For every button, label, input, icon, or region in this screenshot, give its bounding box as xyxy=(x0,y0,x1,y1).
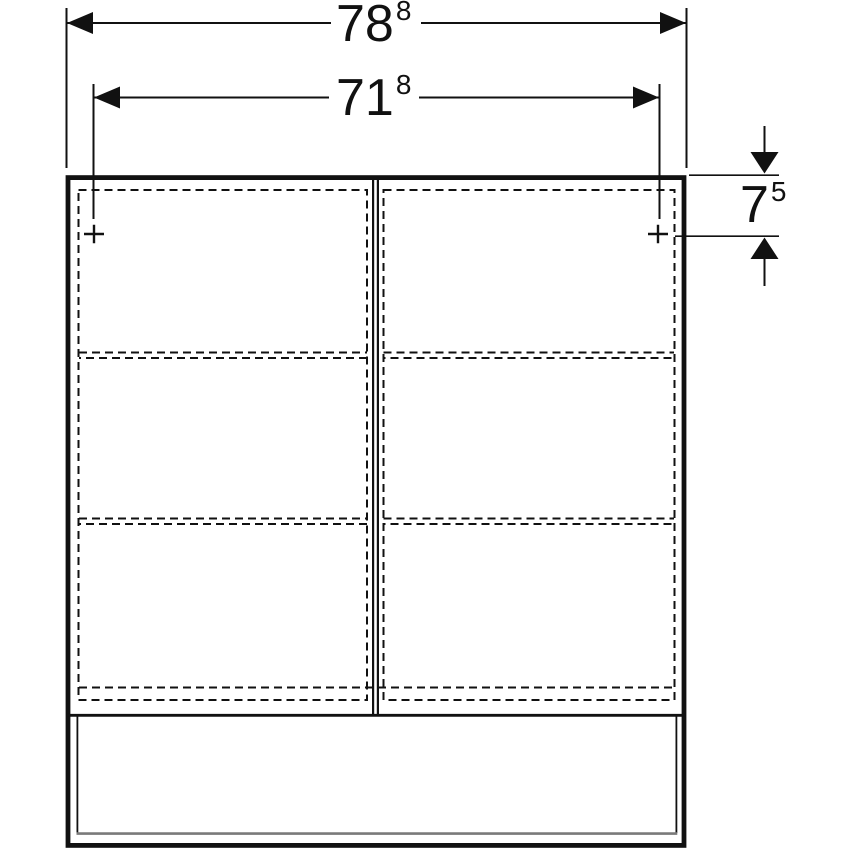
inner-width-value: 71 xyxy=(336,69,394,127)
top-offset-arrow-down-icon xyxy=(751,152,779,174)
cabinet-line-art xyxy=(0,0,850,850)
inner-width-arrow-right-icon xyxy=(633,87,659,109)
inner-width-arrow-left-icon xyxy=(94,87,120,109)
top-offset-value: 7 xyxy=(740,176,769,234)
drawing-canvas: 788 718 75 xyxy=(0,0,850,850)
outer-width-arrow-left-icon xyxy=(67,12,93,34)
outer-width-value: 78 xyxy=(336,0,394,53)
outer-width-arrow-right-icon xyxy=(660,12,686,34)
outer-width-superscript: 8 xyxy=(396,0,412,26)
top-offset-dimension-label: 75 xyxy=(740,179,787,231)
cabinet-body xyxy=(67,178,685,846)
inner-width-superscript: 8 xyxy=(396,69,412,100)
inner-width-dimension-label: 718 xyxy=(336,72,411,124)
top-offset-superscript: 5 xyxy=(771,176,787,207)
top-offset-arrow-up-icon xyxy=(751,238,779,260)
outer-width-dimension-label: 788 xyxy=(336,0,411,50)
cabinet-outer-frame xyxy=(68,178,684,846)
